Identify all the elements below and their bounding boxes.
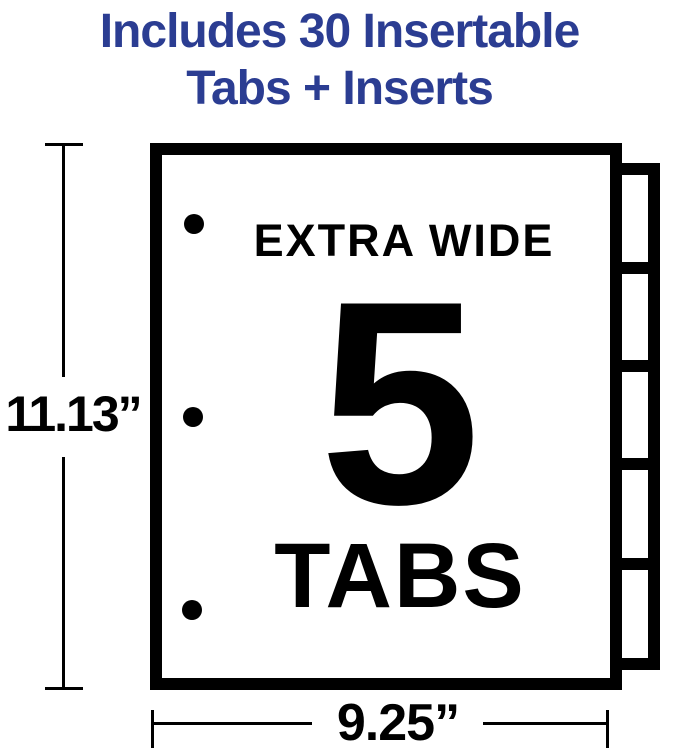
tab-3: [622, 372, 648, 458]
tab-outer-edge: [648, 163, 660, 670]
tab-separator: [610, 558, 660, 570]
tab-1: [622, 175, 648, 262]
height-dimension-label: 11.13”: [5, 386, 140, 442]
tab-separator: [610, 658, 660, 670]
tab-count-number: 5: [319, 241, 480, 565]
tab-2: [622, 274, 648, 360]
width-dimension-label: 9.25”: [337, 694, 459, 749]
product-callout-image: Includes 30 Insertable Tabs + Inserts EX…: [0, 0, 679, 749]
tab-separator: [610, 163, 660, 175]
tab-separator: [610, 262, 660, 274]
tab-4: [622, 470, 648, 558]
hole-punch-top: [184, 214, 204, 234]
divider-diagram: EXTRA WIDE 5 TABS 11.13” 9.25”: [0, 0, 679, 749]
tab-separator: [610, 360, 660, 372]
tabs-label: TABS: [274, 525, 526, 627]
tab-5: [622, 570, 648, 658]
hole-punch-bottom: [182, 600, 202, 620]
tab-separator: [610, 458, 660, 470]
hole-punch-middle: [183, 407, 203, 427]
